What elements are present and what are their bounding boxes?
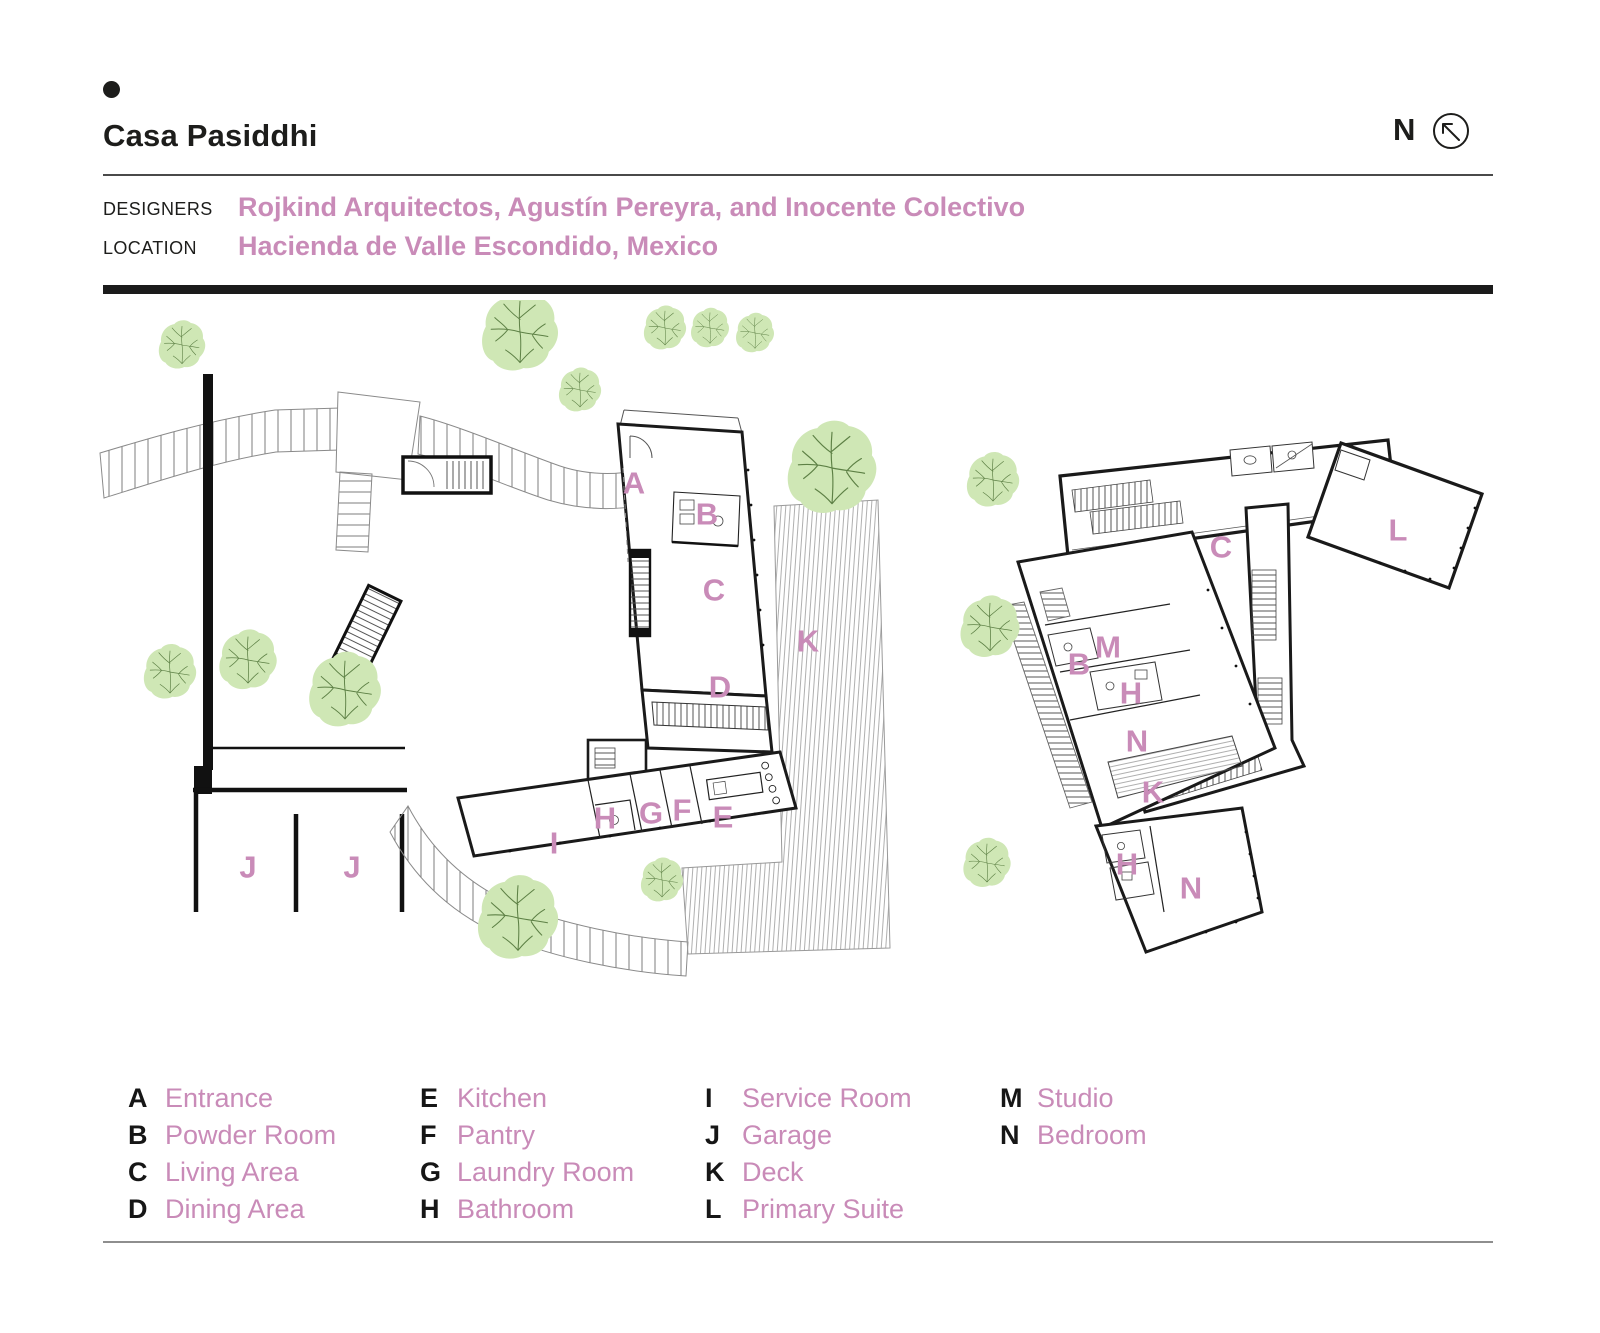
legend-letter: K bbox=[705, 1157, 742, 1188]
top-divider-rule bbox=[103, 174, 1493, 176]
plan-room-label-k: K bbox=[797, 626, 819, 657]
plan-room-label-n: N bbox=[1126, 726, 1148, 757]
legend-entry-h: HBathroom bbox=[420, 1191, 634, 1228]
tree-icons bbox=[960, 452, 1019, 887]
legend-letter: A bbox=[128, 1083, 165, 1114]
legend-column-3: IService RoomJGarageKDeckLPrimary Suite bbox=[705, 1080, 912, 1228]
legend-entry-f: FPantry bbox=[420, 1117, 634, 1154]
upper-floor-plan: CLBMHNKHN bbox=[940, 410, 1520, 960]
plan-room-label-i: I bbox=[550, 828, 559, 859]
plan-room-label-m: M bbox=[1095, 632, 1121, 663]
location-label: LOCATION bbox=[103, 238, 197, 259]
legend-column-1: AEntranceBPowder RoomCLiving AreaDDining… bbox=[128, 1080, 336, 1228]
legend-room-name: Dining Area bbox=[165, 1194, 305, 1225]
plan-room-label-f: F bbox=[673, 795, 692, 826]
legend-letter: L bbox=[705, 1194, 742, 1225]
site-steps-upper bbox=[100, 392, 652, 552]
legend-entry-i: IService Room bbox=[705, 1080, 912, 1117]
plan-room-label-h: H bbox=[594, 803, 616, 834]
legend-entry-d: DDining Area bbox=[128, 1191, 336, 1228]
designers-label: DESIGNERS bbox=[103, 199, 213, 220]
page: Casa Pasiddhi N DESIGNERS Rojkind Arquit… bbox=[0, 0, 1600, 1333]
legend-entry-m: MStudio bbox=[1000, 1080, 1147, 1117]
legend-room-name: Powder Room bbox=[165, 1120, 336, 1151]
legend-letter: B bbox=[128, 1120, 165, 1151]
legend-letter: F bbox=[420, 1120, 457, 1151]
plan-room-label-j: J bbox=[343, 852, 360, 883]
legend-letter: N bbox=[1000, 1120, 1037, 1151]
legend-room-name: Pantry bbox=[457, 1120, 535, 1151]
legend-room-name: Entrance bbox=[165, 1083, 273, 1114]
legend-letter: H bbox=[420, 1194, 457, 1225]
legend-room-name: Service Room bbox=[742, 1083, 912, 1114]
legend-entry-l: LPrimary Suite bbox=[705, 1191, 912, 1228]
upper-floor-plan-drawing bbox=[940, 410, 1520, 960]
legend-letter: E bbox=[420, 1083, 457, 1114]
designers-value: Rojkind Arquitectos, Agustín Pereyra, an… bbox=[238, 192, 1025, 223]
bottom-divider-rule bbox=[103, 1241, 1493, 1243]
main-wing bbox=[618, 410, 766, 696]
compass-north-label: N bbox=[1393, 112, 1415, 148]
ground-floor-plan-drawing bbox=[90, 300, 900, 990]
legend-entry-n: NBedroom bbox=[1000, 1117, 1147, 1154]
garage-walls bbox=[193, 790, 407, 912]
legend-room-name: Garage bbox=[742, 1120, 832, 1151]
legend-letter: G bbox=[420, 1157, 457, 1188]
legend-room-name: Primary Suite bbox=[742, 1194, 904, 1225]
plan-room-label-j: J bbox=[239, 852, 256, 883]
legend-entry-g: GLaundry Room bbox=[420, 1154, 634, 1191]
plan-room-label-a: A bbox=[623, 468, 645, 499]
legend-room-name: Living Area bbox=[165, 1157, 299, 1188]
legend-entry-j: JGarage bbox=[705, 1117, 912, 1154]
room-legend: AEntranceBPowder RoomCLiving AreaDDining… bbox=[0, 1080, 1600, 1240]
legend-room-name: Studio bbox=[1037, 1083, 1114, 1114]
plan-room-label-k: K bbox=[1142, 777, 1164, 808]
legend-room-name: Laundry Room bbox=[457, 1157, 634, 1188]
legend-column-4: MStudioNBedroom bbox=[1000, 1080, 1147, 1154]
plan-room-label-l: L bbox=[1389, 515, 1408, 546]
plan-room-label-d: D bbox=[709, 672, 731, 703]
legend-entry-e: EKitchen bbox=[420, 1080, 634, 1117]
site-stair-corridor bbox=[403, 457, 491, 493]
plan-room-label-c: C bbox=[1210, 532, 1232, 563]
plan-room-label-b: B bbox=[1068, 649, 1090, 680]
legend-room-name: Kitchen bbox=[457, 1083, 547, 1114]
legend-letter: I bbox=[705, 1083, 742, 1114]
plan-room-label-h: H bbox=[1116, 849, 1138, 880]
plan-room-label-h: H bbox=[1120, 678, 1142, 709]
legend-letter: J bbox=[705, 1120, 742, 1151]
legend-column-2: EKitchenFPantryGLaundry RoomHBathroom bbox=[420, 1080, 634, 1228]
compass-north-icon bbox=[1430, 110, 1472, 152]
legend-room-name: Deck bbox=[742, 1157, 804, 1188]
location-value: Hacienda de Valle Escondido, Mexico bbox=[238, 231, 718, 262]
thick-divider-bar bbox=[103, 285, 1493, 294]
plan-room-label-c: C bbox=[703, 575, 725, 606]
page-title: Casa Pasiddhi bbox=[103, 118, 318, 154]
legend-entry-k: KDeck bbox=[705, 1154, 912, 1191]
plan-room-label-b: B bbox=[696, 499, 718, 530]
legend-letter: D bbox=[128, 1194, 165, 1225]
corner-dot bbox=[103, 81, 120, 98]
plan-room-label-e: E bbox=[713, 802, 734, 833]
legend-entry-b: BPowder Room bbox=[128, 1117, 336, 1154]
legend-letter: C bbox=[128, 1157, 165, 1188]
ground-floor-plan: ABCDKIHGFEJJ bbox=[90, 300, 900, 990]
legend-room-name: Bathroom bbox=[457, 1194, 574, 1225]
legend-letter: M bbox=[1000, 1083, 1037, 1114]
plan-room-label-n: N bbox=[1180, 873, 1202, 904]
legend-entry-a: AEntrance bbox=[128, 1080, 336, 1117]
plan-room-label-g: G bbox=[639, 798, 663, 829]
legend-room-name: Bedroom bbox=[1037, 1120, 1147, 1151]
legend-entry-c: CLiving Area bbox=[128, 1154, 336, 1191]
